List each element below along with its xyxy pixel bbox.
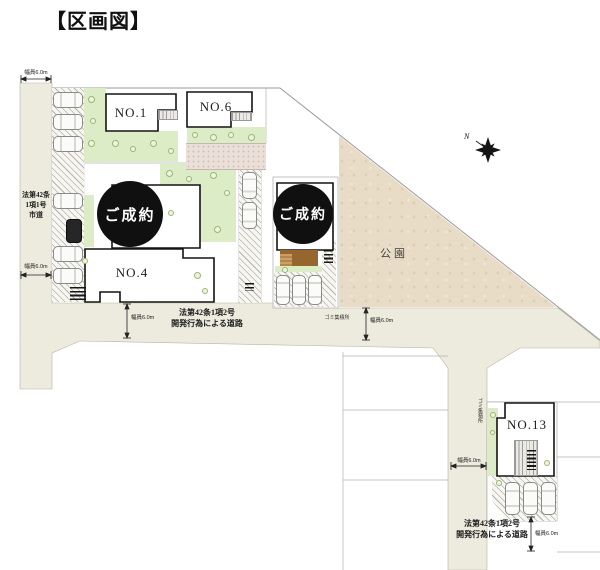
width-label-bottom-left: 幅員6.0m: [131, 313, 163, 321]
bush: [194, 272, 201, 279]
page-title: 【区画図】: [46, 5, 151, 34]
car: [505, 482, 520, 515]
bush: [90, 118, 96, 124]
entrance-steps-sold-right: [324, 250, 333, 264]
car: [53, 246, 83, 262]
width-label-park-side: 幅員6.0m: [370, 316, 402, 324]
width-label-left-mid: 幅員6.0m: [14, 262, 58, 270]
lot-label-no4: NO.4: [102, 265, 162, 281]
bush: [186, 176, 192, 182]
bush: [228, 132, 234, 138]
bush: [192, 132, 198, 138]
bush: [82, 258, 88, 264]
bush: [210, 134, 217, 141]
left-road-line3: 市道: [16, 210, 56, 220]
bush: [210, 172, 217, 179]
entrance-steps-no4: [70, 287, 86, 300]
sold-badge-right: ご成約: [273, 184, 333, 244]
bush: [248, 134, 255, 141]
car: [292, 275, 306, 305]
sold-badge-left: ご成約: [97, 181, 163, 247]
width-label-no13-side: 幅員6.0m: [450, 456, 488, 464]
bush: [168, 148, 174, 154]
garden-no4-courtyard: [188, 264, 212, 300]
left-road-line2: 1項1号: [16, 200, 56, 210]
left-road-label: 法第42条 1項1号 市道: [16, 190, 56, 220]
bush: [88, 140, 95, 147]
car: [541, 482, 556, 515]
lot-label-no1: NO.1: [101, 105, 161, 121]
steps-shared-drive: [245, 283, 254, 291]
park-label: 公園: [364, 245, 424, 261]
sold-badge-left-label: ご成約: [104, 204, 155, 225]
car: [53, 136, 83, 152]
bush: [214, 226, 221, 233]
car: [276, 275, 290, 305]
lot-label-no13: NO.13: [495, 417, 559, 433]
bush: [224, 190, 230, 196]
garbage-station-label-no13: ゴミ集積所: [477, 398, 484, 432]
bush: [88, 96, 95, 103]
car: [242, 202, 257, 229]
deck-steps: [280, 254, 292, 266]
compass-icon: [475, 137, 501, 163]
north-label: N: [464, 132, 469, 141]
width-label-left-top: 幅員6.0m: [14, 68, 58, 76]
car: [53, 92, 83, 108]
bush: [166, 170, 173, 177]
bush: [544, 460, 550, 466]
car: [242, 172, 257, 199]
bush: [112, 140, 119, 147]
car: [53, 268, 83, 284]
bush: [496, 480, 502, 486]
left-road-line1: 法第42条: [16, 190, 56, 200]
bush: [202, 288, 208, 294]
lot-label-no6: NO.6: [186, 99, 246, 115]
car: [53, 193, 83, 209]
entrance-steps-no13: [527, 450, 536, 470]
bush: [168, 210, 174, 216]
deck-no1: [158, 110, 178, 120]
sold-badge-right-label: ご成約: [279, 204, 327, 224]
bush: [130, 146, 136, 152]
car-dark: [66, 219, 82, 243]
southeast-road-line1: 法第42条1項2号: [412, 518, 572, 529]
bush: [282, 267, 288, 273]
paved-driveway: [186, 143, 266, 170]
garbage-station-label-mid: ゴミ集積所: [322, 314, 352, 321]
width-label-no13-bottom: 幅員6.0m: [535, 529, 567, 537]
plot-map: ご成約 ご成約 【区画図】 NO.1 NO.6 NO.4 NO.13 公園 法第…: [0, 0, 600, 570]
car: [53, 114, 83, 130]
car: [308, 275, 322, 305]
bush: [150, 140, 157, 147]
car: [523, 482, 538, 515]
